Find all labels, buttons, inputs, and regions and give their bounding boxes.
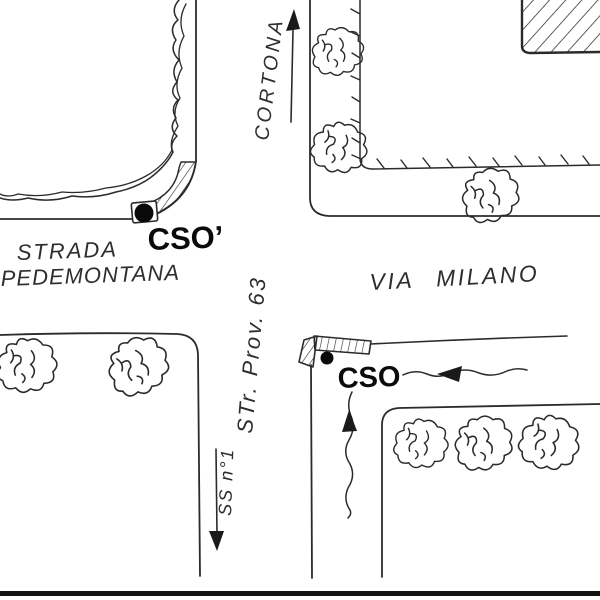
northwest-road-edge — [0, 0, 196, 219]
south-road-west-edge — [311, 365, 312, 578]
approach-from-south-arrow — [342, 392, 357, 518]
label-ss-n1: SS n°1 — [215, 447, 237, 516]
label-cso-prime: CSO’ — [147, 219, 224, 257]
bottom-border-line — [0, 591, 600, 596]
cso-dot — [321, 352, 334, 365]
southwest-block-edge — [0, 333, 200, 576]
label-strada-pedemontana-line1: STRADA — [16, 236, 118, 265]
sketch-map-page: STRADA PEDEMONTANA VIA MILANO CORTONA ST… — [0, 0, 600, 600]
tree-icon — [452, 413, 516, 474]
northwest-block-hedge-line — [0, 0, 186, 200]
hatched-building-northeast — [522, 0, 600, 53]
tree-icon — [457, 163, 523, 227]
hand-drawn-map-canvas: STRADA PEDEMONTANA VIA MILANO CORTONA ST… — [0, 0, 600, 600]
tree-icon — [390, 413, 453, 474]
label-cortona: CORTONA — [251, 16, 288, 142]
cso-building-wedge — [299, 336, 317, 367]
tree-icon — [512, 407, 587, 479]
approach-from-east-arrow — [403, 366, 527, 382]
southeast-block-edge — [382, 404, 600, 577]
tree-icon — [101, 330, 175, 402]
label-str-prov-63: STr. Prov. 63 — [232, 275, 271, 435]
cso-prime-dot — [135, 204, 154, 223]
cso-building-bar — [314, 336, 371, 354]
label-cso: CSO — [337, 361, 401, 395]
cortona-direction-arrow — [286, 9, 300, 122]
via-milano-south-edge — [371, 336, 567, 344]
tree-icon — [305, 115, 374, 181]
label-strada-pedemontana-line2: PEDEMONTANA — [0, 260, 180, 291]
label-via-milano: VIA MILANO — [369, 260, 540, 295]
tree-icon — [0, 334, 60, 396]
